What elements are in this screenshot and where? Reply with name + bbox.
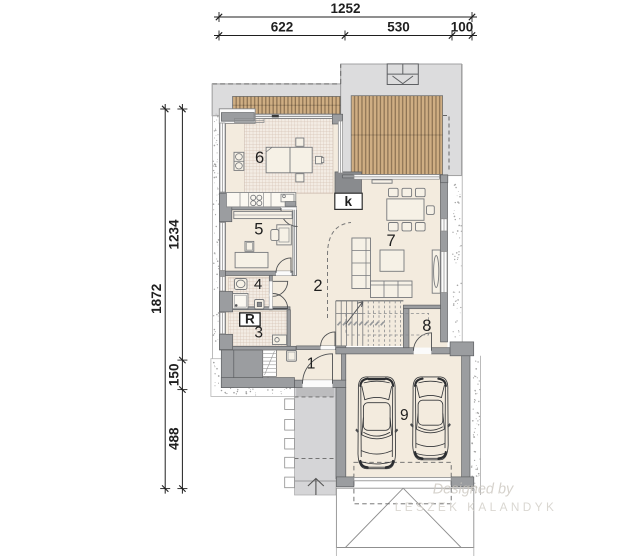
svg-text:9: 9 <box>400 407 409 424</box>
svg-text:5: 5 <box>254 221 263 239</box>
svg-text:2: 2 <box>313 277 322 295</box>
svg-text:1234: 1234 <box>166 219 181 250</box>
svg-text:488: 488 <box>166 427 181 450</box>
svg-text:622: 622 <box>271 20 294 35</box>
svg-text:k: k <box>345 194 353 209</box>
svg-text:1872: 1872 <box>149 284 164 314</box>
svg-text:R: R <box>245 312 255 327</box>
svg-text:6: 6 <box>255 149 264 167</box>
svg-text:7: 7 <box>387 232 396 250</box>
svg-text:1252: 1252 <box>330 1 360 16</box>
svg-text:Designed by: Designed by <box>433 482 514 498</box>
svg-text:8: 8 <box>422 317 431 335</box>
svg-text:150: 150 <box>166 364 181 387</box>
svg-text:100: 100 <box>451 20 474 35</box>
svg-text:LESZEK KALANDYK: LESZEK KALANDYK <box>395 500 557 514</box>
svg-text:530: 530 <box>387 20 410 35</box>
svg-text:4: 4 <box>254 276 262 293</box>
svg-text:3: 3 <box>254 325 263 342</box>
svg-text:1: 1 <box>307 356 316 373</box>
